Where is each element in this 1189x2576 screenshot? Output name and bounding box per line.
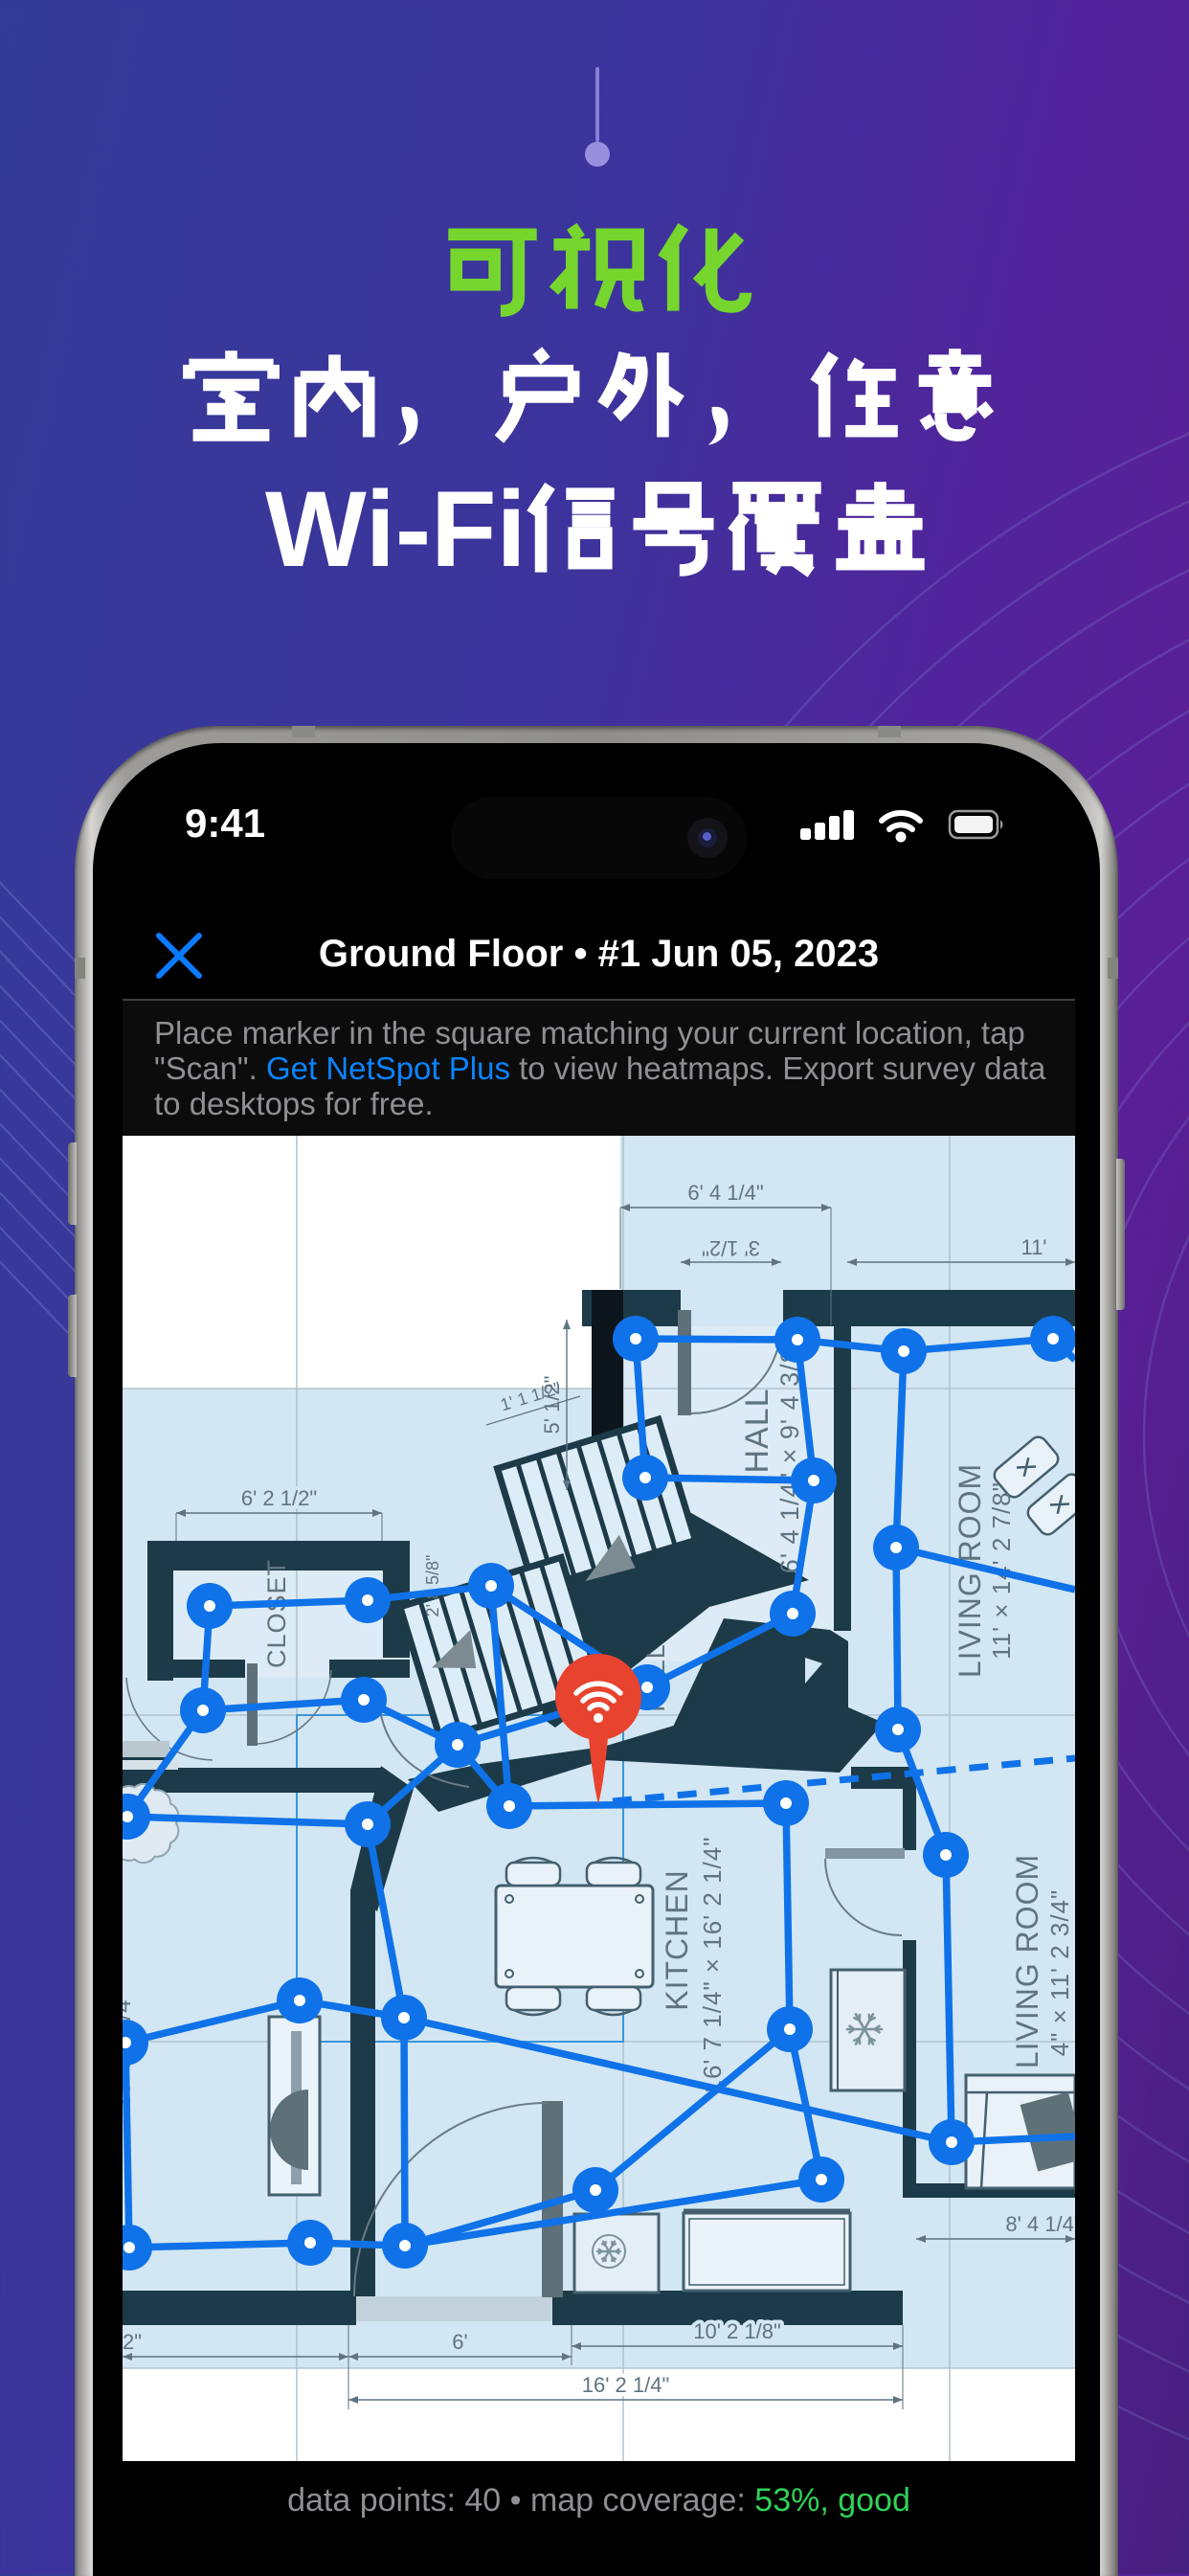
svg-text:LIVING ROOM: LIVING ROOM <box>1010 1854 1044 2068</box>
svg-text:16' 2 1/4": 16' 2 1/4" <box>582 2373 670 2397</box>
svg-text:11': 11' <box>1021 1235 1046 1259</box>
svg-text:CLOSET: CLOSET <box>262 1559 291 1668</box>
svg-text:4" × 11' 2 3/4": 4" × 11' 2 3/4" <box>1045 1889 1074 2057</box>
svg-text:3' 1/2": 3' 1/2" <box>702 1236 760 1260</box>
svg-text:Wi-Fi: Wi-Fi <box>265 469 527 589</box>
svg-text:6' 2 1/2": 6' 2 1/2" <box>241 1486 317 1510</box>
svg-text:8' 4 1/4": 8' 4 1/4" <box>1005 2212 1075 2236</box>
svg-text:10' 2 1/8": 10' 2 1/8" <box>693 2319 781 2343</box>
svg-text:6': 6' <box>452 2330 467 2354</box>
svg-text:6' 4 1/4": 6' 4 1/4" <box>687 1181 763 1205</box>
svg-text:16' 7 1/4" × 16' 2 1/4": 16' 7 1/4" × 16' 2 1/4" <box>698 1837 727 2094</box>
svg-text:2": 2" <box>123 2330 142 2354</box>
svg-text:KITCHEN: KITCHEN <box>660 1869 694 2010</box>
svg-text:2' 8 5/8": 2' 8 5/8" <box>423 1555 442 1617</box>
svg-text:HALL: HALL <box>739 1388 775 1473</box>
svg-text:5' 1/2": 5' 1/2" <box>540 1376 564 1435</box>
